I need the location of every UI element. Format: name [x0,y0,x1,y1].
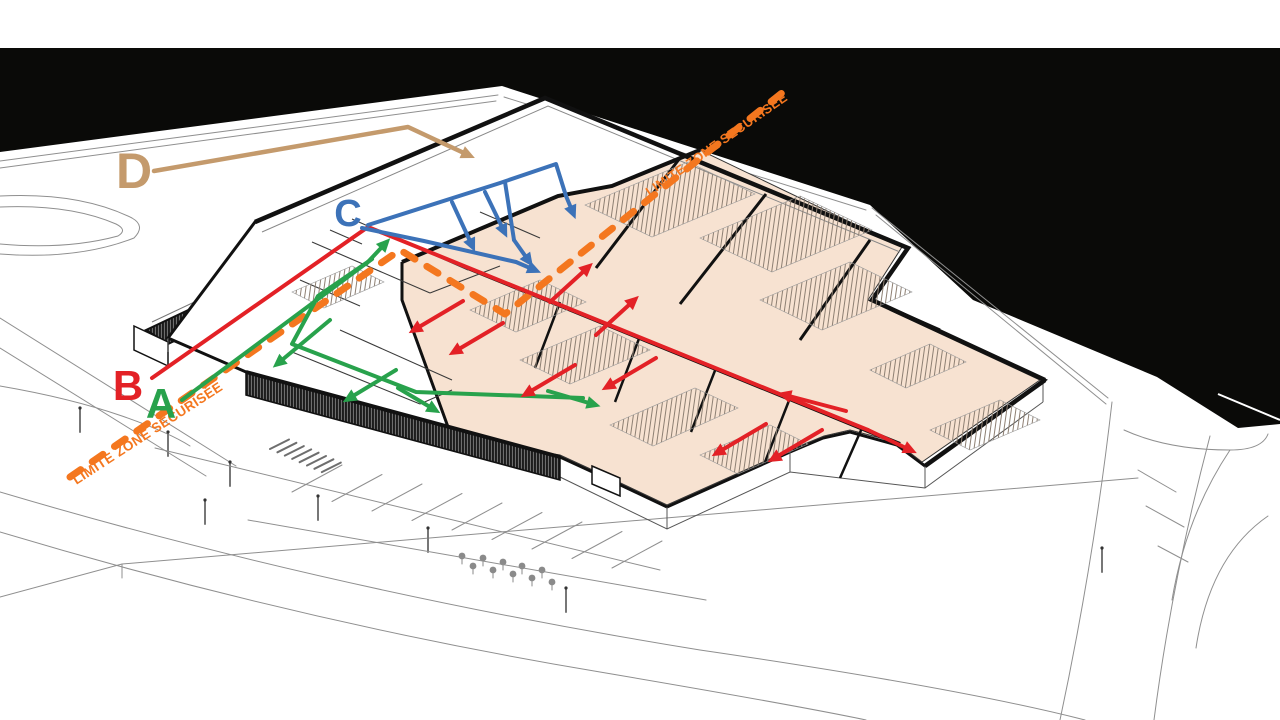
tree [539,567,546,574]
route-d-label: D [116,143,152,199]
ramp-slips [1138,470,1188,562]
tree [529,575,536,582]
right-road-2 [1154,436,1210,720]
parking-edge-2 [248,520,706,600]
front-road-1 [0,492,1085,720]
plaza-edge [0,478,1138,597]
front-road-2 [0,532,866,720]
route-b-label: B [113,362,143,409]
tree [510,571,517,578]
light-pole-head [1100,546,1103,549]
diagram-stage: LIMITE ZONE SECURISÉELIMITE ZONE SECURIS… [0,0,1280,720]
tree [459,553,466,560]
tree [470,563,477,570]
hairpin-road-inner [0,207,123,246]
ramp-3 [1196,516,1268,648]
light-pole-head [228,460,231,463]
light-pole-head [426,526,429,529]
light-pole-head [203,498,206,501]
light-pole-head [166,430,169,433]
crosswalk-stripes [270,440,341,473]
parking-stripe [292,465,342,492]
tree [549,579,556,586]
route-c-label: C [334,193,361,235]
tree [490,567,497,574]
parking-stripe [332,475,382,502]
light-pole-head [564,586,567,589]
scene-svg: LIMITE ZONE SECURISÉELIMITE ZONE SECURIS… [0,0,1280,720]
right-road-1 [1060,402,1112,720]
route-a-label: A [146,380,176,427]
light-pole-head [316,494,319,497]
light-pole-head [78,406,81,409]
ramp-1 [1124,430,1268,450]
